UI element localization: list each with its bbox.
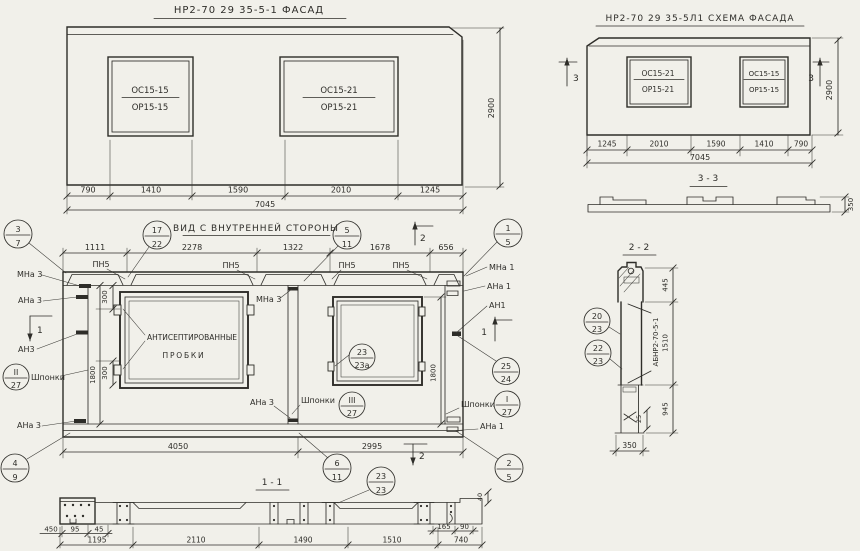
facade-window-left-mark-bottom: ОР15-15: [132, 103, 169, 113]
blueprint-sheet: НР2-70 29 35-5-1 ФАСАД ОС15-15 ОР15-15 О…: [0, 0, 860, 551]
section-3-3-title: 3 - 3: [698, 174, 718, 184]
inner-title: ВИД С ВНУТРЕННЕЙ СТОРОНЫ: [173, 222, 339, 234]
schema-dim-2010: 2010: [649, 140, 668, 149]
facade-window-right: ОС15-21 ОР15-21: [280, 57, 398, 136]
inner-section-mark-1-right: 1: [481, 317, 512, 341]
section-3-3-dim-350: 350: [847, 198, 855, 211]
inner-right-labels: МНа 1 АНа 1 АН1 1 25 24 Шпонки I 27 АНа …: [446, 263, 520, 431]
facade-window-right-mark-bottom: ОР15-21: [321, 103, 358, 113]
inner-section-mark-1-right-label: 1: [481, 328, 487, 338]
callout-22-23-bottom: 23: [593, 357, 603, 366]
callout-2-5-bottom: 5: [506, 473, 511, 482]
section-1-1-dim-45: 45: [95, 526, 104, 534]
section-3-3: 3 - 3 350: [588, 174, 855, 215]
inner-section-mark-1-left-label: 1: [37, 326, 43, 336]
facade-view: НР2-70 29 35-5-1 ФАСАД ОС15-15 ОР15-15 О…: [64, 5, 504, 214]
callout-25-24-bottom: 24: [501, 375, 511, 384]
callout-4-9-top: 4: [12, 459, 17, 468]
callout-17-22-top: 17: [152, 226, 162, 235]
facade-window-left: ОС15-15 ОР15-15: [108, 57, 193, 136]
callout-6-11-bottom: 11: [332, 473, 342, 482]
inner-dim-656: 656: [438, 243, 453, 252]
callout-23-23: 23 23: [338, 467, 395, 503]
section-1-1-profile: [60, 498, 482, 524]
callout-5-11-bottom: 11: [342, 240, 352, 249]
schema-dim-790: 790: [794, 140, 809, 149]
inner-left-dims: 300 300 1800: [89, 282, 120, 427]
inner-section-mark-1-left: 1: [27, 316, 52, 341]
section-2-2-title: 2 - 2: [629, 243, 649, 253]
callout-II-27-top: II: [14, 368, 19, 377]
callout-2-5-top: 2: [506, 459, 511, 468]
callout-23-23a-top: 23: [357, 348, 367, 357]
inner-section-mark-2-top: 2: [412, 222, 433, 245]
pn5-label-3: ПН5: [338, 261, 355, 270]
inner-dim-300-bottom: 300: [101, 366, 109, 379]
callout-III-27-top: III: [348, 396, 355, 405]
inner-section-mark-2-bottom: 2: [404, 444, 427, 465]
inner-dim-1111: 1111: [85, 243, 105, 252]
facade-panel-outline: [67, 27, 462, 185]
label-ana3-left-top: АНа 3: [18, 296, 42, 305]
inner-window-right: [328, 297, 425, 385]
pn5-label-2: ПН5: [222, 261, 239, 270]
callout-22-23-top: 22: [593, 344, 603, 353]
facade-title: НР2-70 29 35-5-1 ФАСАД: [174, 5, 324, 16]
callout-1-5-bottom: 5: [505, 238, 510, 247]
schema-window-left: ОС15-21 ОР15-21: [627, 57, 691, 107]
schema-dim-1590: 1590: [706, 140, 725, 149]
label-mna3-left: МНа 3: [17, 270, 42, 279]
label-an3: АН3: [18, 345, 35, 354]
label-shponki-mid: Шпонки: [301, 396, 335, 405]
inner-dim-300-top: 300: [101, 290, 109, 303]
section-2-2-dim-945: 945: [662, 402, 670, 415]
facade-window-left-mark-top: ОС15-15: [131, 86, 168, 96]
schema-dim-1245: 1245: [597, 140, 616, 149]
pn5-label-4: ПН5: [392, 261, 409, 270]
section-2-2-profile: АБНР2-70-5-1: [615, 263, 660, 434]
inner-pn5-labels: ПН5 ПН5 ПН5 ПН5: [92, 260, 427, 279]
label-an1: АН1: [489, 301, 506, 310]
callout-5-11-top: 5: [344, 226, 349, 235]
inner-dim-2278: 2278: [182, 243, 202, 252]
facade-dim-790: 790: [80, 186, 95, 195]
section-1-1-dim-90: 90: [460, 523, 469, 531]
label-ana1-top: АНа 1: [487, 282, 511, 291]
label-shponki-right: Шпонки: [461, 400, 495, 409]
callout-III-27: III 27: [339, 392, 365, 418]
callout-3-7: 3 7: [4, 220, 66, 273]
inner-window-left: АНТИСЕПТИРОВАННЫЕ ПРОБКИ: [114, 292, 254, 388]
label-shponki-left: Шпонки: [31, 373, 65, 382]
schema-dim-1410: 1410: [754, 140, 773, 149]
callout-17-22-bottom: 22: [152, 240, 162, 249]
section-2-2-dim-1510: 1510: [662, 334, 670, 352]
callout-20-23-bottom: 23: [592, 325, 602, 334]
callout-III-27-bottom: 27: [347, 409, 357, 418]
schema-window-right: ОС15-15 ОР15-15: [740, 57, 788, 107]
facade-dim-1590: 1590: [228, 186, 248, 195]
schema-window-right-mark-bottom: ОР15-15: [749, 86, 779, 94]
section-2-2-dims: 25 445 1510 945 350: [610, 265, 678, 456]
section-1-1-title: 1 - 1: [262, 478, 282, 488]
section-1-1: 1 - 1 40 450 95 45: [40, 478, 491, 548]
schema-section-mark-left: 3: [559, 58, 579, 86]
section-1-1-dim-740: 740: [454, 536, 469, 545]
section-1-1-dims: 40 450 95 45 165 90 1195 2110 1490 1510 …: [40, 489, 491, 548]
schema-dimensions: 2900 1245 2010 1590 1410 790 7045: [584, 37, 843, 168]
callout-17-22: 17 22: [128, 221, 171, 277]
blueprint-canvas: НР2-70 29 35-5-1 ФАСАД ОС15-15 ОР15-15 О…: [0, 0, 860, 551]
section-1-1-dim-2110: 2110: [186, 536, 205, 545]
facade-window-right-mark-top: ОС15-21: [320, 86, 357, 96]
callout-22-23: 22 23: [585, 340, 622, 369]
callout-23-23a-bottom: 23а: [354, 361, 369, 370]
section-2-2-panel-mark: АБНР2-70-5-1: [652, 318, 660, 367]
callout-4-9: 4 9: [1, 433, 70, 482]
section-1-1-dim-450: 450: [44, 526, 57, 534]
callout-I-27-bottom: 27: [502, 408, 512, 417]
callout-1-5-top: 1: [505, 224, 510, 233]
callout-6-11: 6 11: [299, 433, 351, 482]
schema-section-mark-right-label: 3: [808, 74, 814, 84]
callout-25-24-top: 25: [501, 362, 511, 371]
callout-II-27-bottom: 27: [11, 381, 21, 390]
inner-dim-1678: 1678: [370, 243, 390, 252]
callout-3-7-bottom: 7: [15, 239, 20, 248]
inner-dim-2995: 2995: [362, 442, 382, 451]
callout-23-23-top: 23: [376, 472, 386, 481]
schema-window-left-mark-top: ОС15-21: [642, 69, 675, 78]
section-2-2-dim-25: 25: [635, 415, 643, 423]
label-mna1: МНа 1: [489, 263, 514, 272]
inner-left-labels: МНа 3 АНа 3 1 АН3 II 27 Шпонки АНа 3 4 9: [1, 270, 91, 482]
inner-right-edge-details: [447, 281, 461, 432]
callout-I-27-top: I: [506, 395, 508, 404]
section-1-1-dim-1490: 1490: [293, 536, 312, 545]
section-1-1-dim-1195: 1195: [87, 536, 106, 545]
facade-dim-total: 7045: [255, 200, 275, 209]
callout-20-23-top: 20: [592, 312, 602, 321]
callout-6-11-top: 6: [334, 459, 339, 468]
label-ana3-mid: АНа 3: [250, 398, 274, 407]
facade-dim-1410: 1410: [141, 186, 161, 195]
schema-dim-total: 7045: [690, 153, 710, 162]
callout-II-27: II 27: [3, 364, 29, 390]
inner-right-dims: 1800: [424, 294, 446, 427]
facade-dim-height: 2900: [487, 98, 496, 118]
schema-section-mark-left-label: 3: [573, 74, 579, 84]
inner-dim-1800-right: 1800: [430, 364, 438, 382]
inner-view: ВИД С ВНУТРЕННЕЙ СТОРОНЫ 3 7 17 22 5 11 …: [1, 219, 523, 503]
section-1-1-dim-1510: 1510: [382, 536, 401, 545]
inner-section-mark-2-bottom-label: 2: [419, 452, 425, 462]
section-2-2-dim-445: 445: [662, 278, 670, 291]
inner-section-mark-2-top-label: 2: [420, 234, 426, 244]
inner-bottom-dims: 4050 2995: [60, 437, 466, 458]
schema-window-left-mark-bottom: ОР15-21: [642, 85, 674, 94]
facade-dim-2010: 2010: [331, 186, 351, 195]
label-ana1-bottom: АНа 1: [480, 422, 504, 431]
callout-I-27: I 27: [494, 391, 520, 417]
callout-4-9-bottom: 9: [12, 473, 17, 482]
callout-25-24: 25 24: [458, 336, 520, 385]
section-2-2-dim-350: 350: [622, 441, 637, 450]
section-1-1-dim-95: 95: [71, 526, 80, 534]
plugs-label-line1: АНТИСЕПТИРОВАННЫЕ: [147, 333, 237, 342]
label-mna3-mid: МНа 3: [256, 295, 281, 304]
schema-view: НР2-70 29 35-5Л1 СХЕМА ФАСАДА ОС15-21 ОР…: [559, 14, 855, 215]
schema-title: НР2-70 29 35-5Л1 СХЕМА ФАСАДА: [605, 14, 794, 24]
inner-dim-4050: 4050: [168, 442, 188, 451]
callout-20-23: 20 23: [584, 308, 620, 334]
section-1-1-dim-40: 40: [476, 493, 484, 501]
facade-dim-1245: 1245: [420, 186, 440, 195]
label-ana3-left-bottom: АНа 3: [17, 421, 41, 430]
schema-window-right-mark-top: ОС15-15: [749, 70, 780, 78]
callout-23-23-bottom: 23: [376, 486, 386, 495]
callout-3-7-top: 3: [15, 225, 20, 234]
inner-middle-labels: МНа 3 АНа 3 Шпонки III 27: [250, 289, 365, 418]
callout-2-5: 2 5: [456, 431, 523, 482]
pn5-label-1: ПН5: [92, 260, 109, 269]
schema-dim-height: 2900: [825, 80, 834, 100]
section-1-1-dim-165: 165: [437, 523, 450, 531]
plugs-label-line2: ПРОБКИ: [163, 351, 206, 360]
inner-dim-1322: 1322: [283, 243, 303, 252]
inner-dim-1800-left: 1800: [89, 366, 97, 384]
section-2-2: 2 - 2 АБНР2-70-5-1 25 445 1510 945 350 2…: [584, 243, 678, 456]
